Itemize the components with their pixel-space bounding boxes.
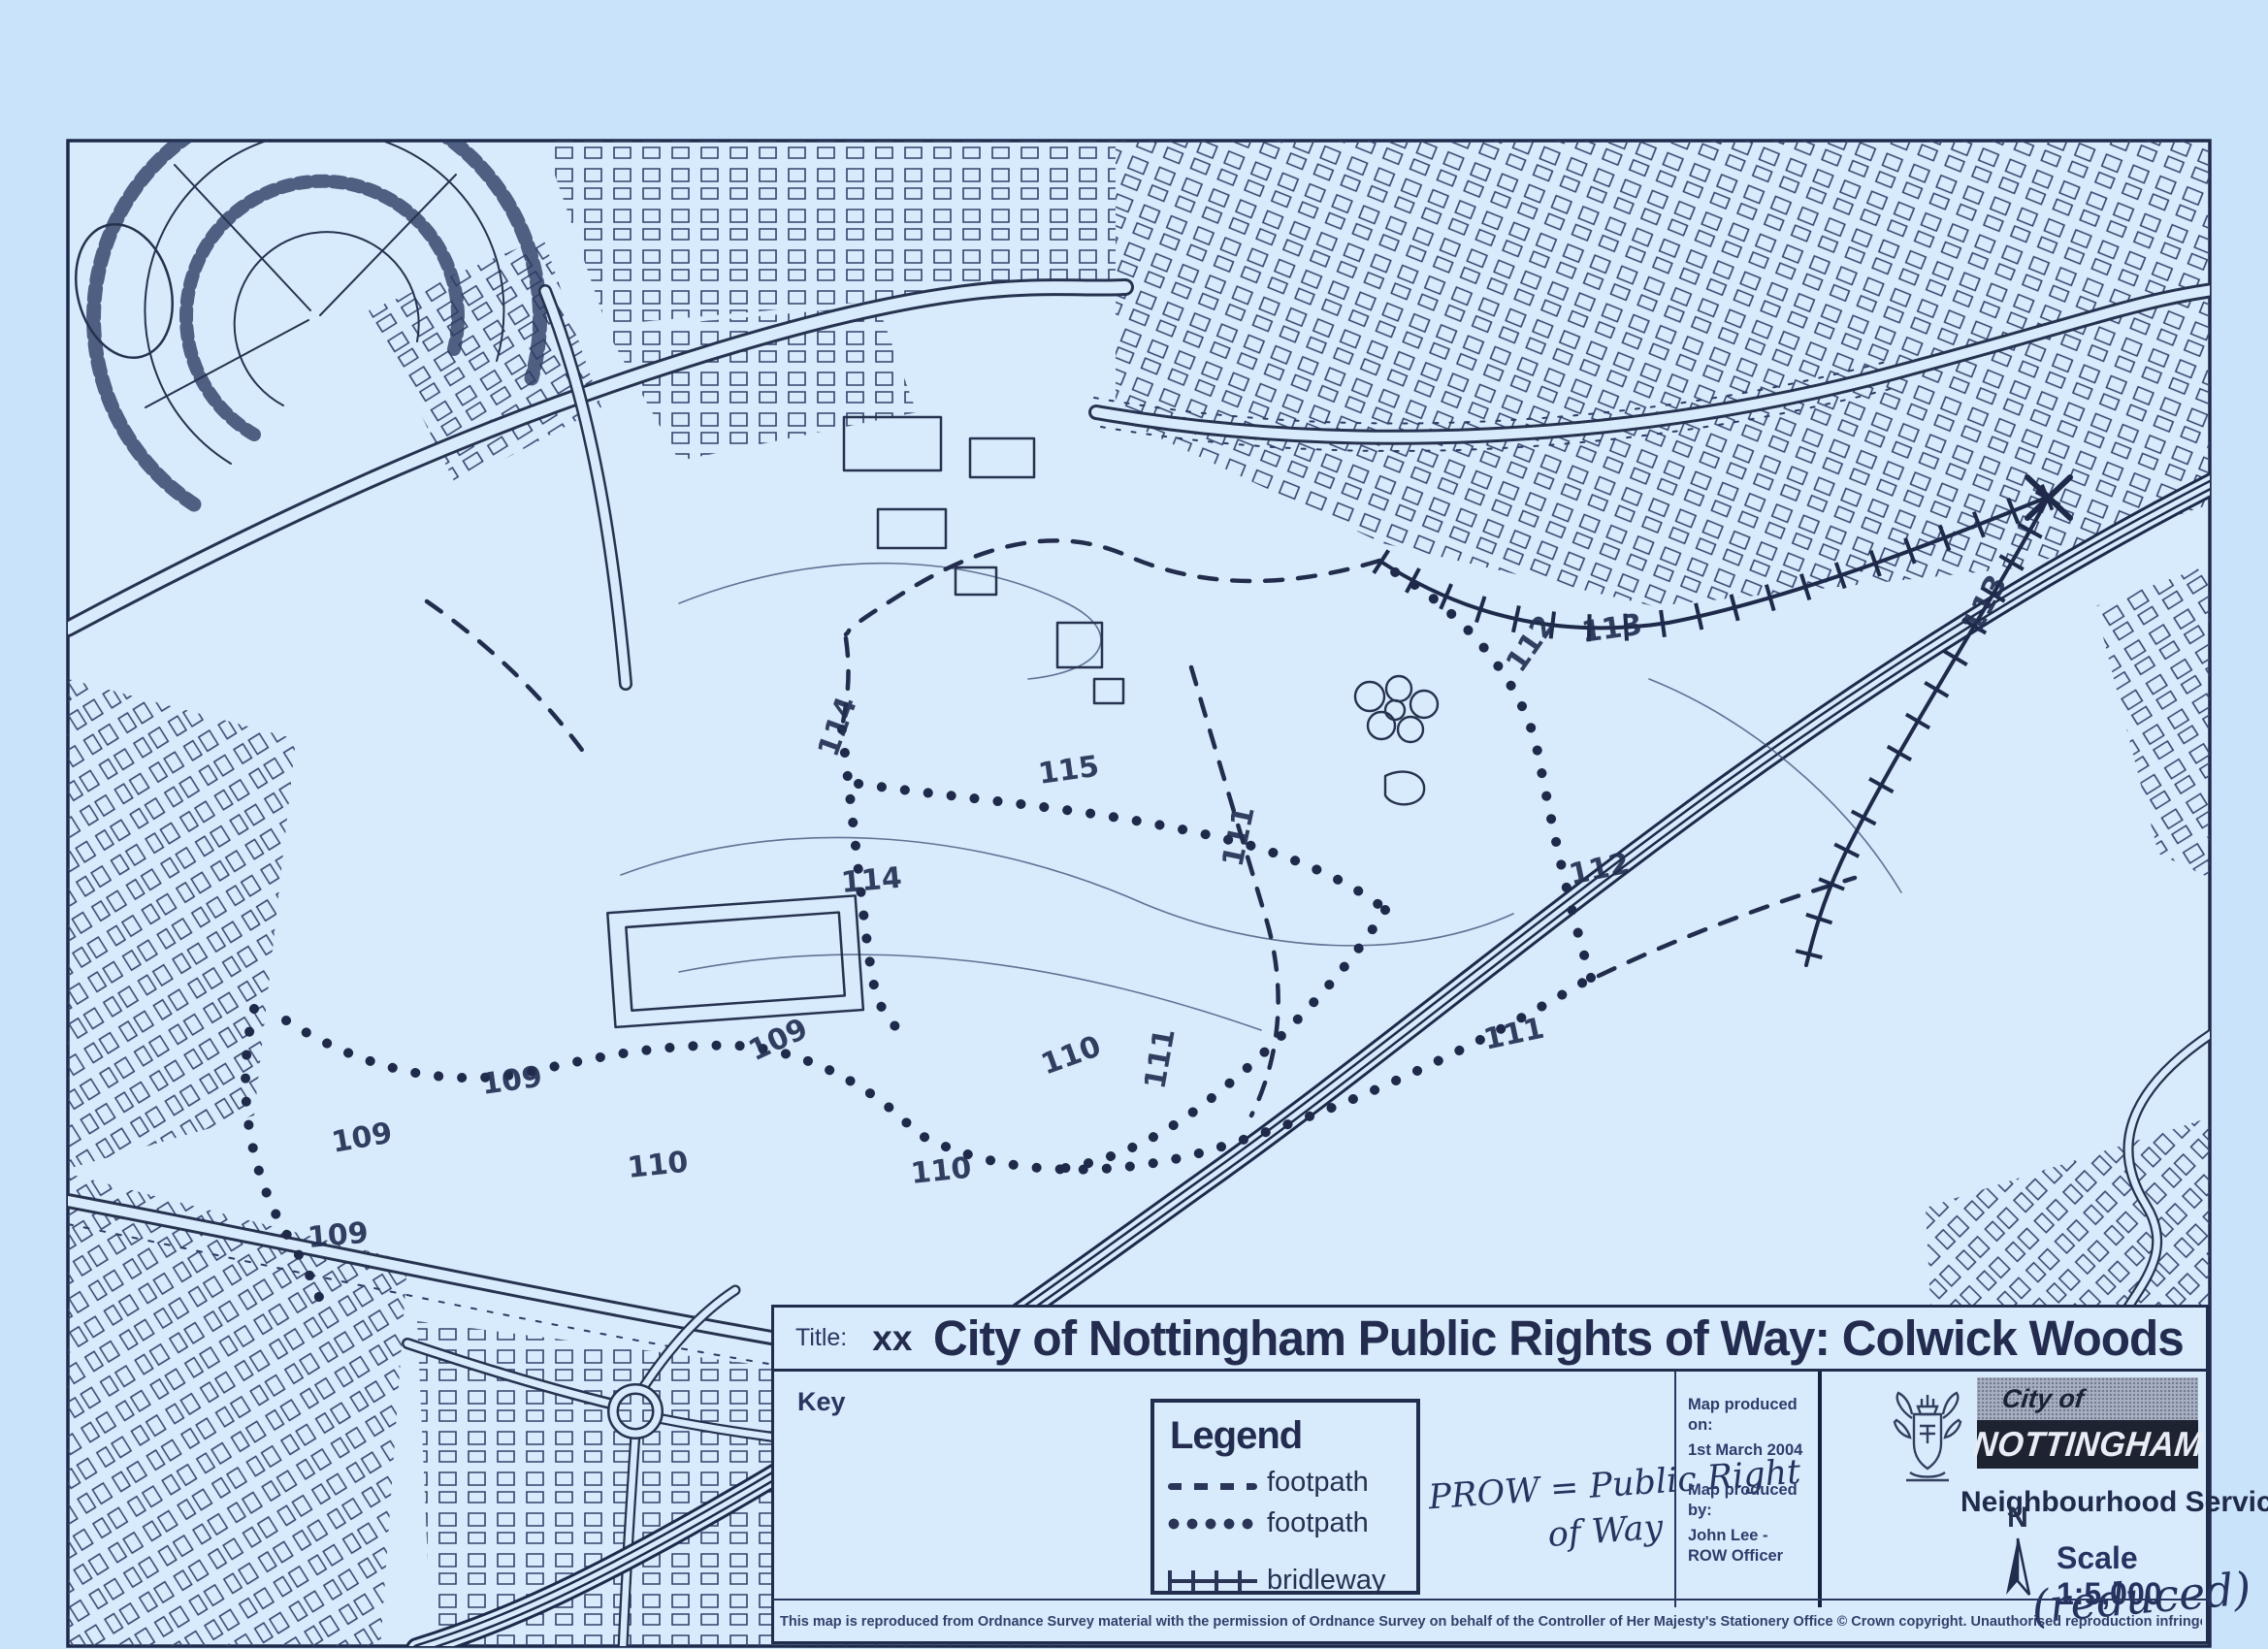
nottingham-text: NOTTINGHAM <box>1971 1424 2205 1465</box>
dotted-line-sample <box>1168 1513 1257 1535</box>
city-of-text: City of <box>2000 1384 2085 1414</box>
north-label: N <box>1994 1502 2041 1535</box>
produced-by-label: Map produced by: <box>1688 1480 1810 1520</box>
city-of-box: City of <box>1977 1377 2198 1420</box>
footer-divider <box>774 1599 2206 1600</box>
path-number-label: 114 <box>840 861 903 900</box>
legend-heading: Legend <box>1170 1414 1403 1458</box>
legend-item-footpath-dotted: footpath <box>1168 1507 1403 1539</box>
map-title-panel: Title: xx City of Nottingham Public Righ… <box>771 1305 2210 1644</box>
logo-boxes: City of NOTTINGHAM <box>1977 1377 2198 1469</box>
production-info-box: Map produced on: 1st March 2004 Map prod… <box>1674 1372 1822 1607</box>
produced-on-label: Map produced on: <box>1688 1395 1810 1435</box>
produced-by-value: John Lee - ROW Officer <box>1688 1526 1810 1566</box>
key-label: Key <box>797 1387 846 1417</box>
title-row: Title: xx City of Nottingham Public Righ… <box>774 1308 2206 1372</box>
path-number-label: 109 <box>307 1216 370 1255</box>
path-number-label: 110 <box>909 1151 973 1191</box>
legend-item-footpath-dashed: footpath <box>1168 1467 1403 1499</box>
legend-item-bridleway: bridleway <box>1168 1565 1403 1597</box>
title-label: Title: <box>795 1324 847 1352</box>
nottingham-box: NOTTINGHAM <box>1977 1420 2198 1469</box>
path-number-label: 110 <box>626 1146 690 1185</box>
legend-box: Legend footpath footpath bridleway <box>1150 1399 1420 1595</box>
title-prefix: xx <box>872 1318 912 1359</box>
bridleway-line-sample <box>1168 1570 1257 1592</box>
copyright-fine-print: This map is reproduced from Ordnance Sur… <box>780 1614 2202 1630</box>
coat-of-arms <box>1883 1385 1972 1494</box>
produced-on-value: 1st March 2004 <box>1688 1440 1810 1461</box>
scanned-map-page: 1131131121121141141151111111111091091091… <box>0 0 2268 1649</box>
dashed-line-sample <box>1168 1483 1257 1490</box>
page-title: City of Nottingham Public Rights of Way:… <box>933 1309 2184 1367</box>
